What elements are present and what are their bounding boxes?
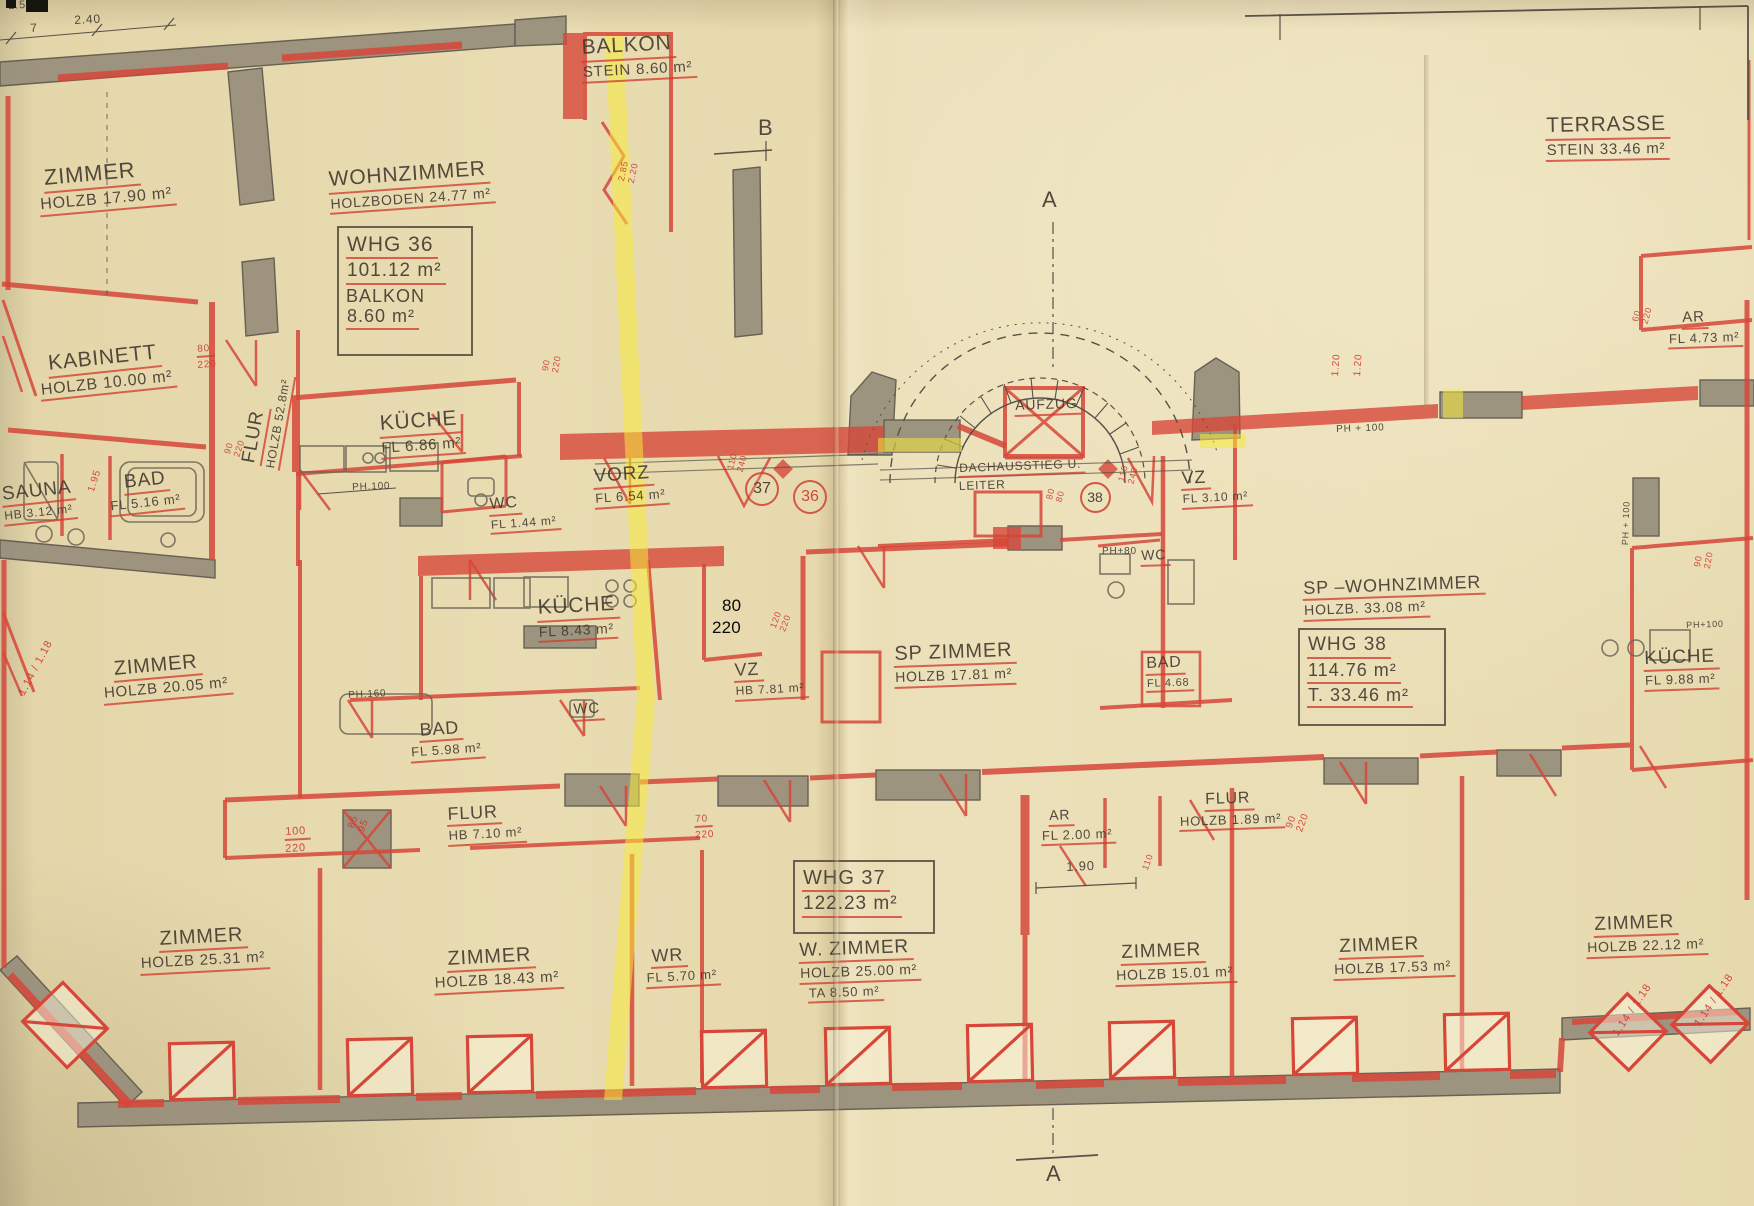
room-vz-781: VZHB 7.81 m² (733, 656, 809, 703)
dim-70-220: 70220 (694, 813, 715, 841)
dim-110-240-a: 110240 (725, 451, 749, 473)
plan-label-line: WR (650, 944, 688, 969)
plan-label-line: STEIN 33.46 m² (1545, 140, 1669, 162)
marker-a-top: A (1042, 188, 1057, 213)
plan-label-line: ZIMMER (158, 923, 248, 953)
plan-label-line: 1.14 / 1.18 (16, 638, 55, 697)
plan-label-line: PH + 100 (1336, 422, 1385, 435)
dim-80-220-a: 80220 (196, 343, 217, 372)
plan-label-line: 220 (1640, 306, 1654, 325)
dim-120-220: 120220 (768, 610, 793, 633)
dim-90-220-d: 90220 (1284, 808, 1312, 834)
plan-label-line: FL 1.44 m² (490, 514, 562, 535)
note-ph100-b: PH + 100 (1336, 422, 1385, 435)
plan-label-line: PH.100 (352, 481, 391, 494)
plan-label-line: PH.160 (348, 688, 387, 701)
apartment-box-line: WHG 37 (802, 867, 890, 892)
plan-label-line: WC (488, 494, 523, 517)
dim-285-220: 2.852.20 (616, 160, 640, 184)
room-zimmer-2005: ZIMMERHOLZB 20.05 m² (112, 648, 233, 707)
plan-label-line: 1.90 (1066, 859, 1095, 875)
plan-label-line: 1.14 / 1.18 (1692, 972, 1736, 1029)
plan-label-line: PH+100 (1686, 619, 1724, 630)
plan-label-line: A (1046, 1162, 1061, 1187)
plan-label-line: DACHAUSSTIEG U. (958, 458, 1086, 479)
plan-label-line: SP ZIMMER (893, 639, 1017, 669)
note-ph100-c: PH + 100 (1620, 501, 1632, 546)
unit-number-circle-37: 37 (745, 472, 779, 506)
plan-label-line: HB 7.10 m² (447, 825, 527, 847)
room-balkon: BALKONSTEIN 8.60 m² (580, 30, 697, 86)
plan-label-line: VZ (1180, 466, 1211, 491)
plan-label-line: SP –WOHNZIMMER (1302, 572, 1486, 602)
dim-90-220-c: 90220 (1692, 549, 1715, 570)
apartment-box-line: 122.23 m² (802, 894, 902, 918)
plan-label-line: STEIN 8.60 m² (581, 58, 696, 84)
plan-label-line: FL 3.10 m² (1181, 489, 1252, 509)
plan-label-line: HOLZB 25.00 m² (799, 962, 922, 985)
plan-label-line: 1.95 (86, 468, 104, 493)
plan-label-line: AUFZUG (1014, 396, 1082, 417)
note-ph100-a: PH.100 (352, 481, 391, 494)
room-kueche-843: KÜCHEFL 8.43 m² (536, 592, 621, 645)
note-80-black: 80 (722, 596, 741, 615)
floor-plan-scan: 2.5072.40ZIMMERHOLZB 17.90 m²BALKONSTEIN… (0, 0, 1754, 1206)
plan-label-line: FLUR (446, 801, 502, 827)
room-wc-38: WC (1140, 547, 1171, 569)
apartment-box-line: 8.60 m² (346, 307, 419, 330)
apartment-box-line: 114.76 m² (1307, 661, 1401, 684)
plan-label-line: WC (1140, 547, 1171, 567)
plan-label-line: FL 4.73 m² (1668, 330, 1744, 350)
paper-edge-mark (6, 0, 16, 8)
plan-label-line: ZIMMER (1120, 939, 1206, 966)
room-wr: WRFL 5.70 m² (650, 942, 722, 990)
dim-114-118-b: 1.14 / 1.18 (1610, 982, 1654, 1039)
room-wc-small: WC (572, 700, 605, 723)
room-kabinett: KABINETTHOLZB 10.00 m² (46, 339, 178, 403)
plan-label-line: 220 (285, 842, 306, 855)
room-sp-zimmer: SP ZIMMERHOLZB 17.81 m² (893, 639, 1018, 691)
plan-label-line: HOLZB 22.12 m² (1586, 936, 1709, 959)
room-aufzug: AUFZUG (1014, 396, 1082, 419)
plan-label-line: AR (1681, 309, 1709, 330)
room-bad-598: BADFL 5.98 m² (418, 715, 486, 764)
room-terrasse: TERRASSESTEIN 33.46 m² (1545, 112, 1670, 164)
apartment-box-line: WHG 36 (346, 233, 438, 259)
plan-label-line: BALKON (580, 31, 676, 62)
plan-label-line: ZIMMER (1338, 933, 1424, 960)
room-zimmer-1501: ZIMMERHOLZB 15.01 m² (1120, 938, 1238, 989)
room-vorz: VORZFL 6.54 m² (592, 461, 670, 512)
plan-label-line: FL 2.00 m² (1041, 826, 1117, 846)
dim-114-118-a: 1.14 / 1.18 (16, 638, 55, 697)
plan-label-line: 1.20 (1352, 353, 1365, 376)
room-ar-473: ARFL 4.73 m² (1681, 308, 1744, 351)
plan-label-line: 220 (197, 359, 217, 371)
plan-label-line: FL 6.54 m² (594, 487, 670, 510)
room-zimmer-2531: ZIMMERHOLZB 25.31 m² (158, 922, 270, 977)
plan-label-line: HOLZB 15.01 m² (1115, 964, 1238, 987)
plan-label-line: FL 5.98 m² (410, 741, 486, 764)
plan-label-line: BAD (122, 467, 171, 496)
plan-label-line: 7 (30, 22, 38, 36)
dim-114-118-c: 1.14 / 1.18 (1692, 972, 1736, 1029)
plan-label-line: BAD (418, 717, 464, 743)
marker-a-bottom: A (1046, 1162, 1061, 1187)
room-vz-310: VZFL 3.10 m² (1180, 464, 1253, 511)
plan-label-line: 80 (196, 343, 215, 358)
plan-label-line: 80 (1054, 489, 1067, 503)
room-flur-710: FLURHB 7.10 m² (446, 800, 527, 849)
dim-100-220: 100220 (284, 825, 311, 856)
plan-label-line: 220 (1295, 812, 1312, 834)
room-zimmer-1790: ZIMMERHOLZB 17.90 m² (42, 155, 177, 219)
marker-b: B (758, 116, 773, 141)
plan-label-line: TERRASSE (1545, 112, 1670, 141)
room-zimmer-2212: ZIMMERHOLZB 22.12 m² (1593, 910, 1709, 961)
plan-label-line: FLUR (1204, 789, 1255, 812)
apartment-box-line: T. 33.46 m² (1307, 686, 1413, 709)
plan-label-line: HB 7.81 m² (734, 681, 808, 701)
room-wc-144: WCFL 1.44 m² (488, 491, 561, 537)
apartment-box-line: 101.12 m² (346, 261, 446, 285)
plan-label-line: HOLZB 18.43 m² (433, 969, 563, 996)
dim-60-220: 60220 (1630, 303, 1654, 325)
plan-label-line: HOLZB. 33.08 m² (1303, 599, 1430, 622)
plan-label-line: ZIMMER (1593, 911, 1679, 938)
room-w-zimmer: W. ZIMMERHOLZB 25.00 m²TA 8.50 m² (798, 936, 922, 1007)
plan-label-line: 220 (550, 355, 563, 374)
apartment-box-whg36: WHG 36101.12 m²BALKON8.60 m² (337, 226, 473, 356)
note-ph100-d: PH+100 (1686, 619, 1724, 630)
plan-label-line: KÜCHE (536, 592, 620, 623)
plan-label-line: LEITER (959, 479, 1006, 494)
unit-number-circle-36: 36 (793, 480, 827, 514)
plan-label-line: PH+80 (1102, 546, 1137, 557)
room-kueche-988: KÜCHEFL 9.88 m² (1643, 645, 1720, 693)
plan-label-line: 1.20 (1330, 353, 1343, 376)
room-zimmer-1753: ZIMMERHOLZB 17.53 m² (1338, 932, 1456, 983)
apartment-box-line: BALKON (346, 287, 425, 307)
plan-label-line: BAD (1145, 654, 1186, 676)
paper-edge-mark (26, 0, 48, 12)
dim-120-a: 1.20 (1330, 353, 1343, 376)
plan-label-line: 110 (1140, 852, 1155, 871)
apartment-box-whg38: WHG 38114.76 m²T. 33.46 m² (1298, 628, 1446, 726)
dim-195: 1.95 (86, 468, 104, 493)
room-sp-wohnzimmer: SP –WOHNZIMMERHOLZB. 33.08 m² (1302, 572, 1486, 624)
apartment-box-whg37: WHG 37122.23 m² (793, 860, 935, 934)
plan-label-line: ZIMMER (446, 943, 536, 973)
plan-label-line: HOLZB 1.89 m² (1179, 811, 1286, 832)
dim-110-240-b: 110240 (1116, 463, 1140, 485)
plan-label-line: HOLZB 17.81 m² (894, 666, 1017, 689)
dim-120-b: 1.20 (1352, 353, 1365, 376)
plan-label-line: A (1042, 188, 1057, 213)
plan-label-line: W. ZIMMER (798, 936, 913, 964)
plan-label-line: VZ (733, 658, 764, 683)
plan-label-line: B (758, 116, 773, 141)
plan-label-line: FL 5.16 m² (109, 492, 186, 517)
dim-240: 2.40 (74, 13, 101, 28)
room-zimmer-1843: ZIMMERHOLZB 18.43 m² (446, 942, 564, 997)
plan-label-line: 80 (722, 596, 741, 615)
dim-85-95: 8595 (346, 814, 371, 834)
plan-label-line: FL 6.86 m² (380, 435, 466, 461)
dim-90-220-b: 90220 (540, 353, 563, 374)
plan-label-line: FL 5.70 m² (645, 967, 721, 988)
plan-label-line: 1.14 / 1.18 (1610, 982, 1654, 1039)
plan-label-line: 220 (1702, 551, 1715, 570)
unit-number-circle-38: 38 (1080, 482, 1111, 513)
plan-label-line: PH + 100 (1620, 501, 1632, 546)
room-flur-189: FLURHOLZB 1.89 m² (1178, 788, 1286, 834)
apartment-box-line: WHG 38 (1307, 635, 1391, 659)
note-dachausstieg: DACHAUSSTIEG U.LEITER (958, 458, 1086, 494)
plan-label-line: WC (572, 700, 605, 721)
room-bad-516: BADFL 5.16 m² (122, 466, 186, 518)
plan-label-line: TA 8.50 m² (808, 984, 884, 1004)
plan-label-line: HOLZB 17.53 m² (1333, 958, 1456, 981)
plan-label-line: 2.40 (74, 13, 101, 28)
plan-label-line: KÜCHE (378, 406, 462, 438)
plan-label-line: HOLZB 25.31 m² (139, 950, 269, 977)
plan-label-line: FL 9.88 m² (1644, 672, 1720, 692)
dim-110: 110 (1140, 852, 1155, 871)
plan-label-line: AR (1048, 807, 1075, 827)
plan-label-line: 220 (712, 618, 741, 637)
room-wohnzimmer: WOHNZIMMERHOLZBODEN 24.77 m² (327, 156, 496, 217)
room-bad-468: BADFL 4.68 (1145, 653, 1194, 695)
plan-label-line: KÜCHE (1643, 645, 1719, 672)
room-ar-200: ARFL 2.00 m² (1048, 806, 1117, 849)
dim-7: 7 (30, 22, 38, 36)
plan-label-line: 95 (357, 818, 372, 834)
note-ph160: PH.160 (348, 688, 387, 701)
note-220-black: 220 (712, 618, 741, 637)
room-kueche-686: KÜCHEFL 6.86 m² (378, 406, 466, 462)
plan-label-line: VORZ (592, 462, 655, 490)
room-sauna: SAUNAHB 3.12 m² (0, 476, 79, 528)
plan-label-line: 100 (284, 825, 311, 842)
note-ph80: PH+80 (1102, 546, 1137, 557)
plan-label-line: 70 (694, 813, 712, 828)
plan-label-line: FL 4.68 (1146, 676, 1194, 693)
dim-190: 1.90 (1066, 859, 1095, 875)
plan-label-line: FL 8.43 m² (537, 620, 618, 643)
labels-layer: 2.5072.40ZIMMERHOLZB 17.90 m²BALKONSTEIN… (0, 0, 1754, 1206)
plan-label-line: 220 (695, 829, 715, 841)
